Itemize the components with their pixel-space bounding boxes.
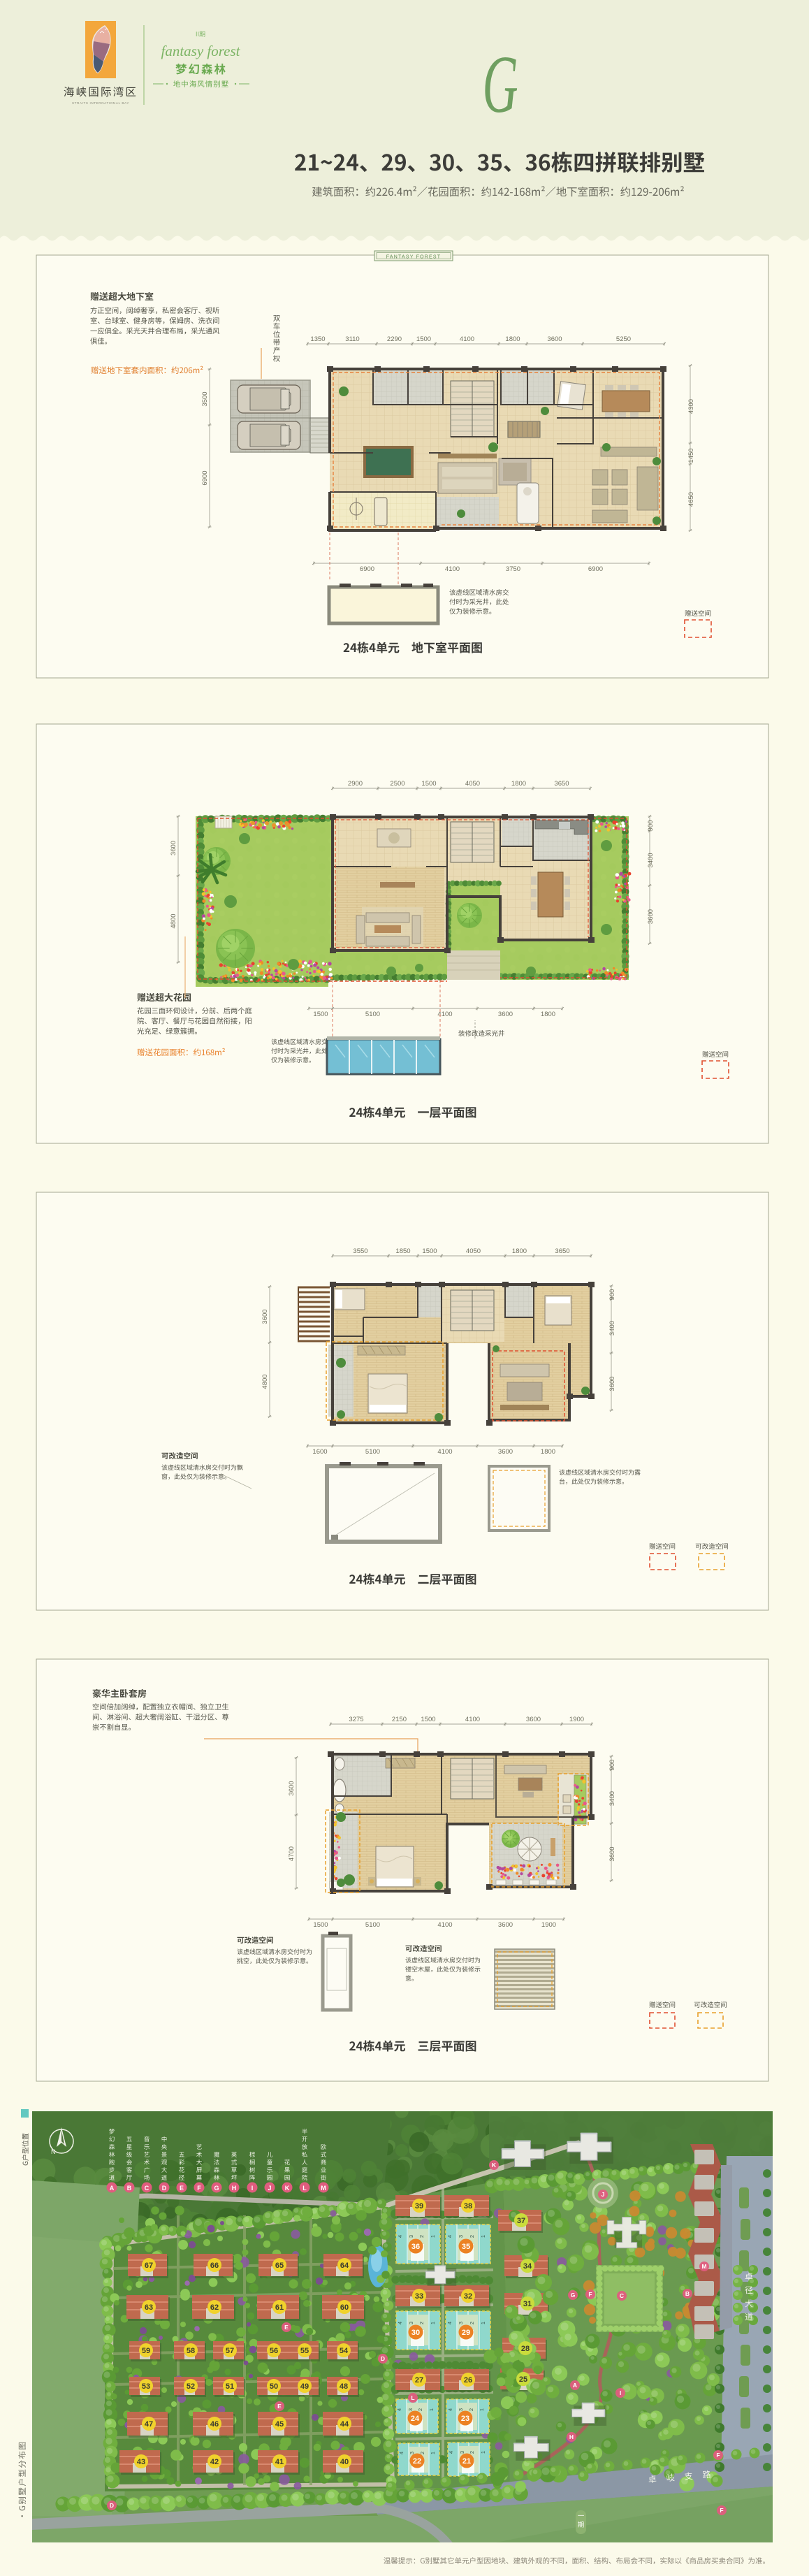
svg-text:3550: 3550 bbox=[353, 1247, 367, 1255]
svg-text:3600: 3600 bbox=[288, 1781, 296, 1795]
svg-text:B: B bbox=[127, 2185, 132, 2192]
svg-text:28: 28 bbox=[521, 2345, 530, 2353]
svg-text:38: 38 bbox=[464, 2202, 472, 2210]
svg-text:F: F bbox=[716, 2452, 720, 2459]
svg-text:30: 30 bbox=[411, 2329, 420, 2337]
svg-text:55: 55 bbox=[300, 2347, 309, 2355]
svg-text:4100: 4100 bbox=[460, 335, 474, 343]
svg-text:32: 32 bbox=[464, 2292, 472, 2301]
svg-text:4: 4 bbox=[398, 2452, 404, 2454]
svg-text:1: 1 bbox=[480, 2451, 486, 2454]
svg-text:2: 2 bbox=[417, 2408, 423, 2411]
svg-text:3400: 3400 bbox=[608, 1791, 616, 1806]
svg-text:61: 61 bbox=[275, 2303, 284, 2312]
svg-text:48: 48 bbox=[340, 2382, 348, 2391]
svg-text:3600: 3600 bbox=[170, 841, 177, 855]
svg-text:36: 36 bbox=[411, 2243, 420, 2251]
svg-text:2: 2 bbox=[418, 2322, 425, 2324]
svg-text:L: L bbox=[411, 2394, 414, 2401]
svg-text:M: M bbox=[701, 2263, 706, 2270]
svg-text:3: 3 bbox=[409, 2452, 415, 2454]
svg-text:3: 3 bbox=[407, 2408, 414, 2411]
svg-text:3650: 3650 bbox=[555, 1247, 569, 1255]
svg-text:4800: 4800 bbox=[170, 913, 177, 928]
svg-text:1800: 1800 bbox=[541, 1011, 555, 1018]
svg-text:4700: 4700 bbox=[288, 1846, 296, 1861]
svg-text:46: 46 bbox=[210, 2420, 219, 2429]
svg-text:G: G bbox=[214, 2185, 219, 2192]
svg-text:1: 1 bbox=[430, 2235, 436, 2238]
svg-text:44: 44 bbox=[340, 2420, 349, 2429]
svg-text:35: 35 bbox=[462, 2243, 470, 2251]
svg-text:2: 2 bbox=[468, 2408, 474, 2411]
svg-text:G: G bbox=[482, 39, 518, 131]
svg-text:N: N bbox=[51, 2148, 56, 2155]
svg-text:59: 59 bbox=[142, 2347, 150, 2355]
svg-text:3: 3 bbox=[458, 2322, 464, 2324]
svg-text:54: 54 bbox=[340, 2347, 349, 2355]
svg-text:3: 3 bbox=[458, 2408, 464, 2411]
svg-text:fantasy forest: fantasy forest bbox=[161, 43, 241, 59]
svg-text:50: 50 bbox=[270, 2382, 278, 2391]
svg-text:1500: 1500 bbox=[416, 335, 431, 343]
svg-text:3: 3 bbox=[408, 2235, 414, 2238]
svg-text:J: J bbox=[602, 2191, 605, 2198]
svg-text:52: 52 bbox=[187, 2382, 195, 2391]
svg-text:58: 58 bbox=[187, 2347, 195, 2355]
svg-text:4050: 4050 bbox=[465, 780, 480, 788]
svg-text:40: 40 bbox=[340, 2458, 349, 2466]
svg-text:25: 25 bbox=[519, 2375, 527, 2384]
svg-text:H: H bbox=[232, 2185, 237, 2192]
svg-text:27: 27 bbox=[415, 2376, 423, 2385]
svg-text:4: 4 bbox=[397, 2235, 403, 2238]
svg-text:3: 3 bbox=[459, 2451, 465, 2454]
svg-text:3600: 3600 bbox=[498, 1448, 513, 1456]
svg-text:4: 4 bbox=[447, 2408, 453, 2411]
svg-text:1900: 1900 bbox=[541, 1921, 556, 1929]
svg-text:39: 39 bbox=[415, 2202, 423, 2210]
svg-text:900: 900 bbox=[647, 820, 655, 832]
svg-text:3750: 3750 bbox=[506, 565, 520, 573]
svg-text:53: 53 bbox=[142, 2382, 150, 2391]
svg-text:3650: 3650 bbox=[554, 780, 569, 788]
svg-text:2150: 2150 bbox=[392, 1716, 407, 1723]
svg-text:3600: 3600 bbox=[647, 909, 655, 924]
svg-text:C: C bbox=[620, 2292, 624, 2299]
svg-text:4650: 4650 bbox=[687, 492, 695, 507]
svg-text:F: F bbox=[720, 2507, 723, 2514]
svg-text:42: 42 bbox=[210, 2458, 219, 2466]
svg-text:D: D bbox=[162, 2185, 167, 2192]
svg-text:6900: 6900 bbox=[360, 565, 374, 573]
svg-text:K: K bbox=[492, 2162, 497, 2169]
svg-text:31: 31 bbox=[523, 2300, 532, 2308]
svg-text:1800: 1800 bbox=[541, 1448, 555, 1456]
svg-text:1: 1 bbox=[430, 2452, 436, 2454]
svg-text:H: H bbox=[569, 2433, 574, 2440]
svg-text:1: 1 bbox=[479, 2408, 485, 2411]
svg-text:26: 26 bbox=[464, 2376, 472, 2385]
svg-text:E: E bbox=[277, 2403, 282, 2410]
svg-text:3: 3 bbox=[458, 2235, 464, 2238]
svg-text:3600: 3600 bbox=[261, 1309, 269, 1324]
svg-text:3600: 3600 bbox=[498, 1921, 513, 1929]
svg-text:3600: 3600 bbox=[608, 1846, 616, 1861]
svg-text:1500: 1500 bbox=[313, 1921, 328, 1929]
svg-text:4050: 4050 bbox=[466, 1247, 481, 1255]
svg-text:900: 900 bbox=[608, 1289, 616, 1301]
svg-text:57: 57 bbox=[226, 2347, 234, 2355]
svg-text:41: 41 bbox=[275, 2458, 284, 2466]
svg-text:FANTASY FOREST: FANTASY FOREST bbox=[386, 255, 441, 260]
svg-text:4100: 4100 bbox=[437, 1921, 452, 1929]
svg-text:64: 64 bbox=[340, 2262, 349, 2270]
svg-text:L: L bbox=[303, 2185, 307, 2192]
svg-text:1800: 1800 bbox=[505, 335, 520, 343]
svg-text:6900: 6900 bbox=[588, 565, 603, 573]
svg-text:2290: 2290 bbox=[387, 335, 402, 343]
svg-text:1500: 1500 bbox=[421, 1716, 435, 1723]
svg-text:4: 4 bbox=[397, 2322, 403, 2324]
svg-text:1800: 1800 bbox=[512, 1247, 527, 1255]
svg-text:1: 1 bbox=[430, 2322, 436, 2324]
svg-text:4: 4 bbox=[446, 2235, 453, 2238]
svg-text:49: 49 bbox=[300, 2382, 309, 2391]
svg-text:E: E bbox=[284, 2324, 289, 2331]
svg-text:4300: 4300 bbox=[687, 399, 695, 414]
svg-text:21: 21 bbox=[462, 2457, 471, 2466]
svg-text:J: J bbox=[268, 2185, 271, 2192]
svg-text:1600: 1600 bbox=[312, 1448, 327, 1456]
svg-text:B: B bbox=[685, 2290, 690, 2297]
svg-text:4: 4 bbox=[446, 2322, 453, 2324]
svg-text:1800: 1800 bbox=[511, 780, 526, 788]
svg-text:3275: 3275 bbox=[349, 1716, 363, 1723]
svg-text:3600: 3600 bbox=[526, 1716, 541, 1723]
svg-text:1900: 1900 bbox=[569, 1716, 584, 1723]
svg-text:STRAITS INTERNATIONAL BAY: STRAITS INTERNATIONAL BAY bbox=[72, 101, 129, 105]
svg-text:51: 51 bbox=[226, 2382, 234, 2391]
svg-text:67: 67 bbox=[145, 2262, 153, 2270]
svg-text:I: I bbox=[620, 2389, 621, 2396]
svg-text:K: K bbox=[285, 2185, 290, 2192]
svg-text:3600: 3600 bbox=[608, 1376, 616, 1391]
svg-text:E: E bbox=[180, 2185, 184, 2192]
svg-text:2: 2 bbox=[419, 2452, 425, 2454]
svg-text:1: 1 bbox=[428, 2408, 435, 2411]
svg-text:60: 60 bbox=[340, 2303, 349, 2312]
svg-text:29: 29 bbox=[462, 2329, 470, 2337]
svg-text:D: D bbox=[381, 2355, 385, 2362]
svg-text:6900: 6900 bbox=[201, 470, 209, 485]
svg-text:1500: 1500 bbox=[422, 1247, 437, 1255]
svg-text:A: A bbox=[573, 2382, 577, 2389]
svg-text:3400: 3400 bbox=[647, 853, 655, 867]
svg-text:F: F bbox=[588, 2291, 592, 2298]
svg-text:4100: 4100 bbox=[437, 1448, 452, 1456]
svg-text:47: 47 bbox=[145, 2420, 153, 2429]
svg-text:2: 2 bbox=[418, 2235, 425, 2238]
svg-text:24: 24 bbox=[411, 2415, 420, 2423]
svg-text:3: 3 bbox=[408, 2322, 414, 2324]
svg-text:1350: 1350 bbox=[310, 335, 325, 343]
svg-text:2: 2 bbox=[469, 2322, 475, 2324]
svg-text:3600: 3600 bbox=[498, 1011, 513, 1018]
svg-text:1: 1 bbox=[480, 2322, 486, 2324]
svg-text:65: 65 bbox=[275, 2262, 284, 2270]
svg-text:3600: 3600 bbox=[547, 335, 562, 343]
svg-text:5100: 5100 bbox=[365, 1921, 380, 1929]
svg-text:33: 33 bbox=[415, 2292, 423, 2301]
svg-text:3110: 3110 bbox=[345, 335, 359, 343]
svg-text:5100: 5100 bbox=[365, 1448, 380, 1456]
svg-text:34: 34 bbox=[523, 2262, 532, 2271]
svg-text:1500: 1500 bbox=[421, 780, 436, 788]
svg-text:23: 23 bbox=[461, 2415, 469, 2423]
svg-text:3500: 3500 bbox=[201, 391, 209, 406]
svg-text:G: G bbox=[571, 2292, 576, 2299]
svg-text:5250: 5250 bbox=[616, 335, 631, 343]
svg-text:C: C bbox=[145, 2185, 150, 2192]
svg-text:1850: 1850 bbox=[395, 1247, 410, 1255]
svg-text:4: 4 bbox=[396, 2408, 402, 2411]
svg-text:37: 37 bbox=[517, 2217, 525, 2225]
svg-text:4100: 4100 bbox=[465, 1716, 480, 1723]
svg-text:D: D bbox=[110, 2502, 114, 2509]
svg-text:5100: 5100 bbox=[365, 1011, 380, 1018]
svg-text:1450: 1450 bbox=[687, 448, 695, 463]
svg-text:4: 4 bbox=[448, 2451, 454, 2454]
svg-text:56: 56 bbox=[270, 2347, 278, 2355]
svg-text:2900: 2900 bbox=[348, 780, 363, 788]
svg-text:3400: 3400 bbox=[608, 1321, 616, 1336]
svg-text:1: 1 bbox=[480, 2235, 486, 2238]
svg-text:62: 62 bbox=[210, 2303, 219, 2312]
svg-text:I: I bbox=[252, 2185, 254, 2192]
svg-text:2500: 2500 bbox=[390, 780, 404, 788]
svg-text:2: 2 bbox=[469, 2235, 475, 2238]
svg-text:43: 43 bbox=[137, 2458, 145, 2466]
svg-text:M: M bbox=[321, 2185, 326, 2192]
svg-text:45: 45 bbox=[275, 2420, 284, 2429]
svg-text:66: 66 bbox=[210, 2262, 219, 2270]
svg-text:1500: 1500 bbox=[313, 1011, 328, 1018]
svg-text:63: 63 bbox=[145, 2303, 153, 2312]
svg-text:2: 2 bbox=[469, 2451, 475, 2454]
svg-text:A: A bbox=[110, 2185, 115, 2192]
svg-text:F: F bbox=[197, 2185, 201, 2192]
svg-text:4100: 4100 bbox=[445, 565, 460, 573]
svg-text:900: 900 bbox=[608, 1760, 616, 1771]
svg-text:4800: 4800 bbox=[261, 1374, 269, 1389]
svg-text:22: 22 bbox=[413, 2457, 421, 2466]
